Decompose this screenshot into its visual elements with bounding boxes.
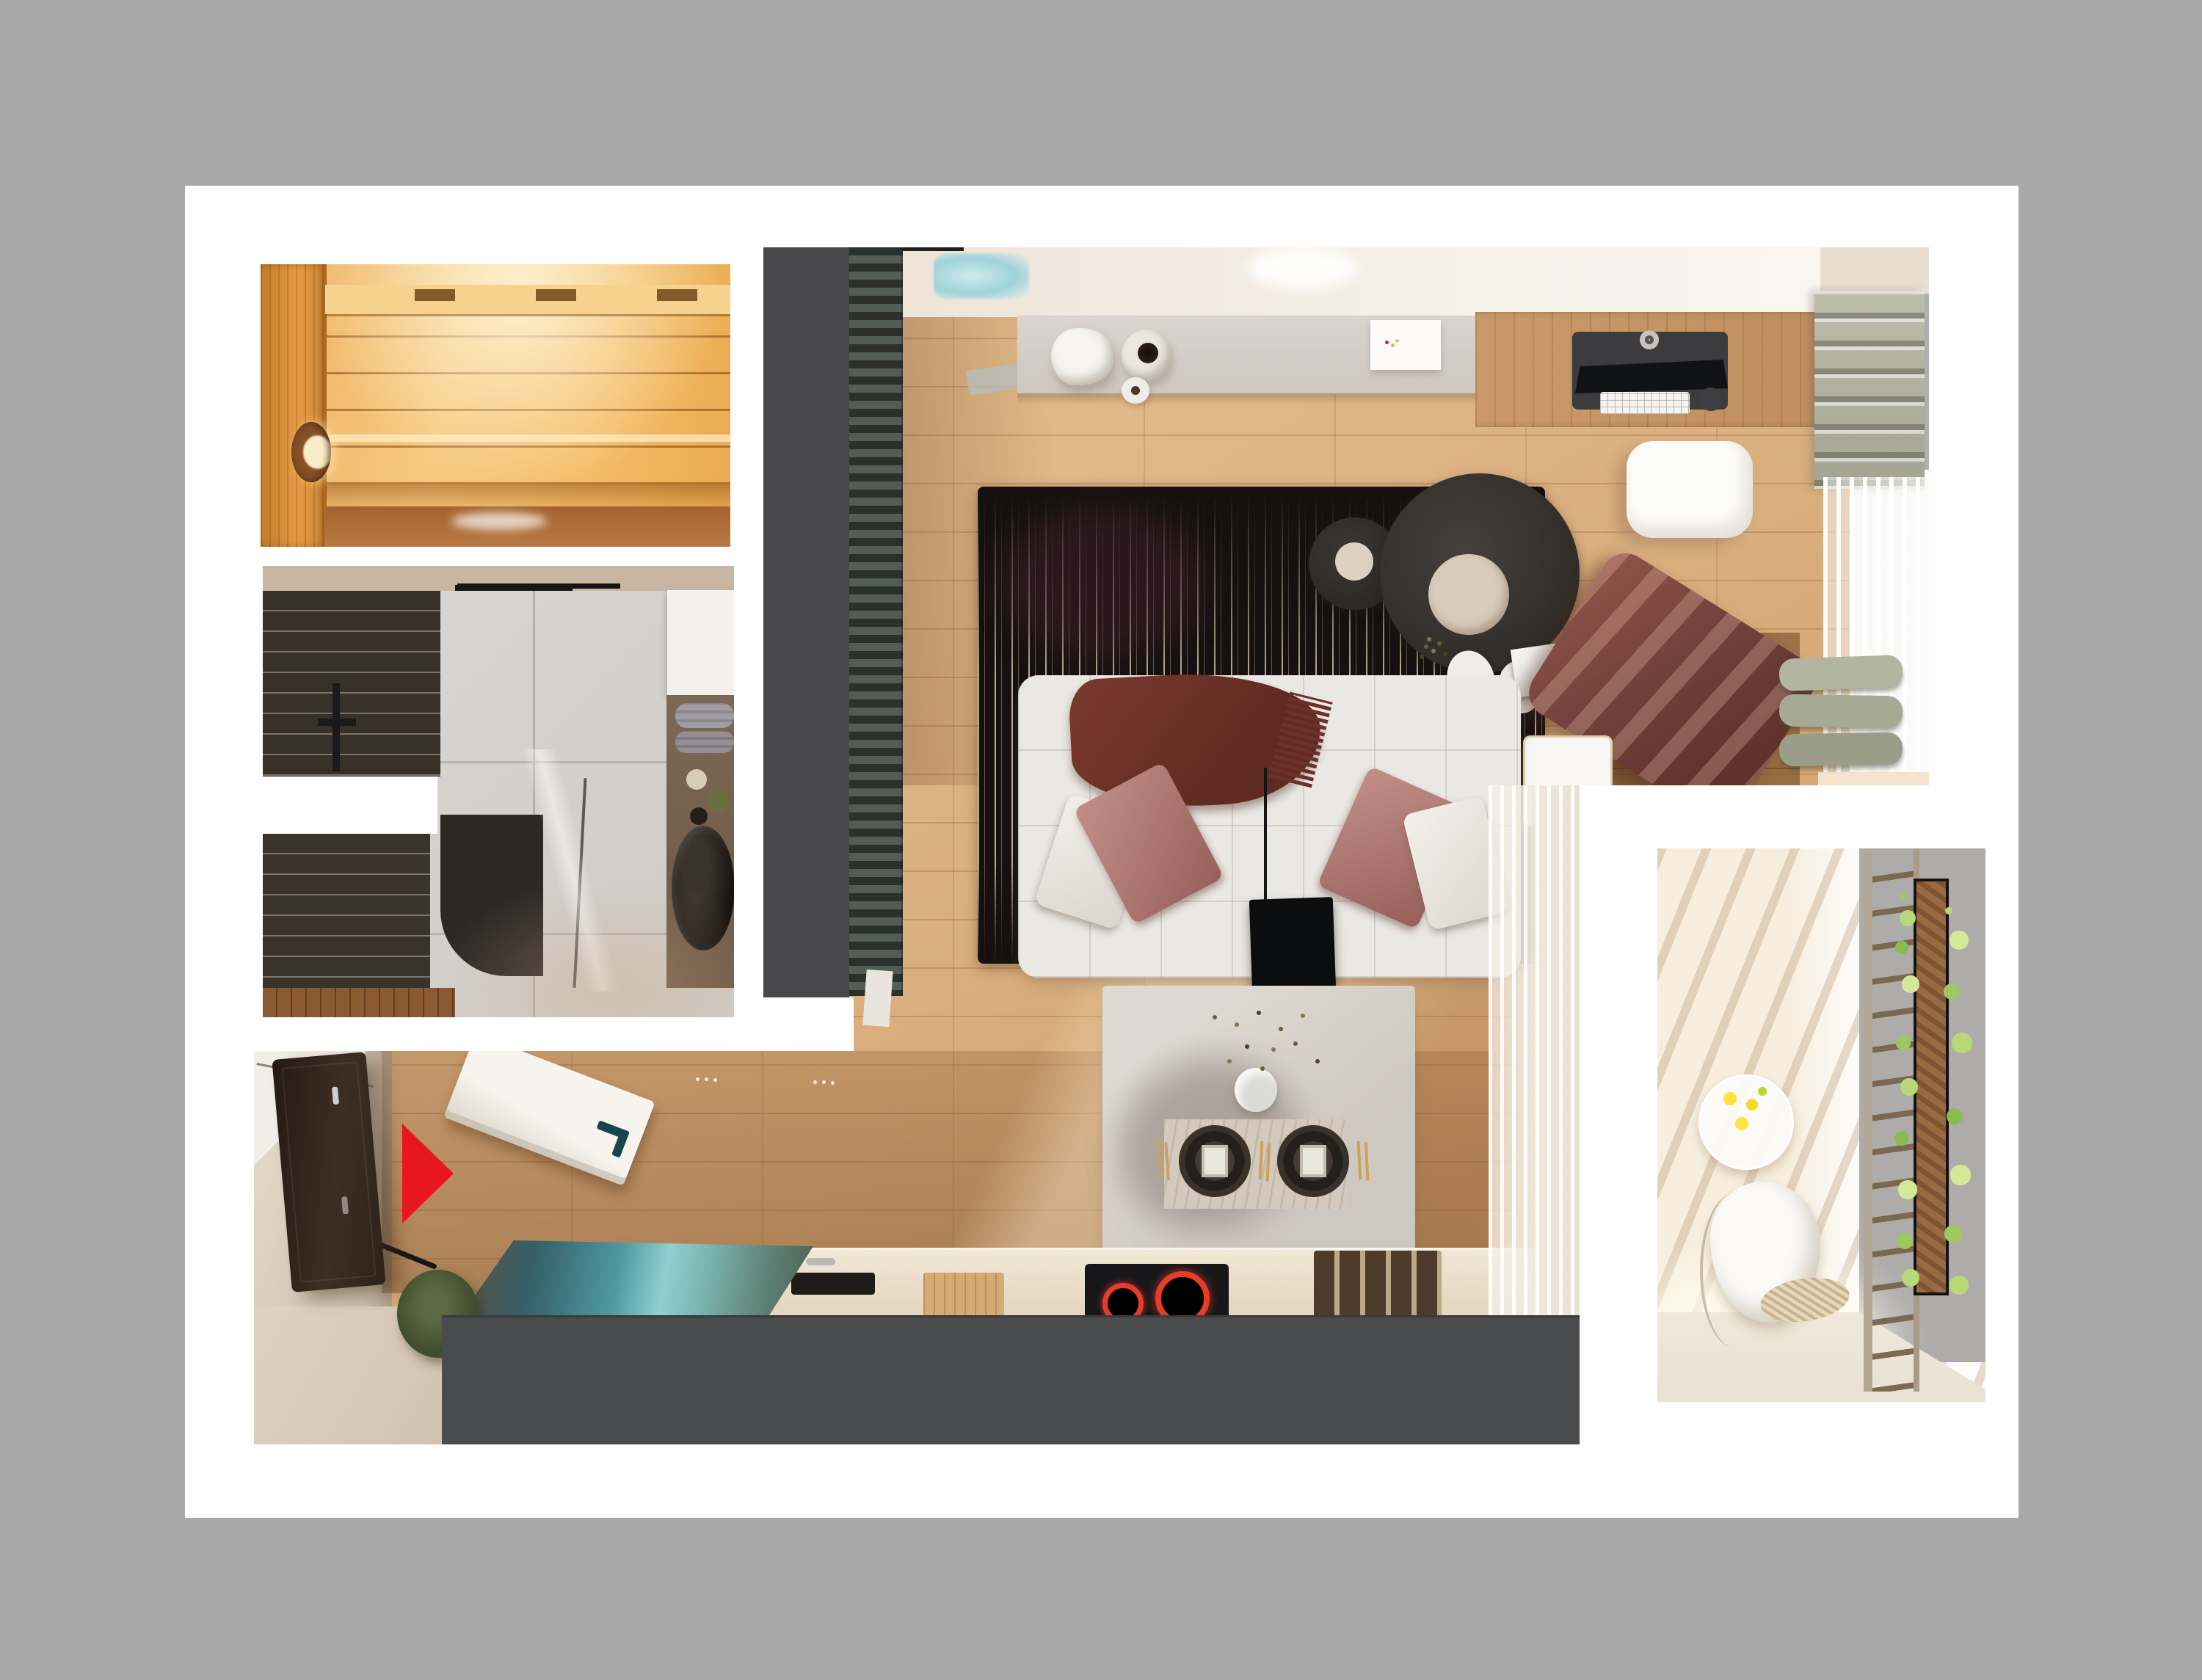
balcony-photo [1657,848,1985,1402]
tv-pole [1264,768,1267,903]
sauna-wall-lamp [291,422,331,482]
sauna-photo [261,264,730,547]
sauna-rail-slots [334,289,730,301]
spotlight-reflections [696,1077,700,1081]
shelving-base-cap [862,970,893,1027]
white-pouf [1627,441,1753,538]
ceiling-band [901,247,1929,317]
soap-dish [690,807,708,825]
bathroom-warm-light [430,874,734,1017]
planter-greenery [1900,892,1907,900]
soap-dish [686,769,707,790]
shower-dark-tiles-upper [263,591,440,777]
skylight [934,253,1029,299]
balcony-trellis-ladder [1864,848,1919,1392]
tv-screen [1249,897,1336,995]
rolled-towel [675,703,734,728]
shower-ceiling-arm [455,585,573,591]
rug-sheen [1000,509,1205,655]
art-print-dots [1385,341,1389,344]
partition-wall-dark [763,247,849,997]
planter-greenery [1945,907,1952,914]
dining-table [1102,986,1415,1251]
balcony-round-table [1698,1074,1794,1170]
gold-cutlery [1357,1141,1362,1179]
glass-vase [1235,1068,1277,1112]
shower-dark-tiles-lower [263,834,430,988]
roman-shade [1814,291,1925,489]
bathroom-wall-notch [263,777,437,834]
kitchen-sink [791,1273,875,1295]
bathroom-cabinet [667,590,734,695]
shower-mixer [333,683,340,771]
lemons-on-table [1723,1092,1737,1105]
dried-flower-sprigs [1213,1015,1217,1019]
window-top-wall [1820,247,1929,294]
window-bench-cushions [1779,657,1905,777]
slatted-shelving-unit [849,247,903,996]
sauna-side-wall [261,264,327,547]
art-print-box [1370,320,1441,370]
folded-cushion [1779,732,1903,767]
tv-console-shadow [1017,393,1475,405]
mouse [1701,388,1720,411]
round-vase-opening [1138,343,1158,363]
shower-handle [318,719,356,726]
soap-dish [706,789,730,812]
cutlery-organizer [1314,1251,1442,1320]
folded-cushion [1779,694,1903,729]
wardrobe-panel-frame [281,1061,376,1283]
coffee-table-small-tray [1335,542,1373,581]
bathroom-wood-floor [263,988,455,1017]
doormat [966,363,1022,396]
keyboard [1600,392,1690,414]
coral-sculpture [1051,328,1113,385]
vertical-planter [1914,879,1949,1295]
dried-flowers [1424,644,1428,649]
floor-plan-canvas [0,0,2202,1680]
rolled-towel [675,731,734,753]
coffee-table-large-tray [1428,554,1509,635]
small-vase-opening [1131,386,1140,395]
napkin-card [1202,1145,1228,1177]
kitchen-faucet [806,1258,835,1265]
cutting-board [923,1273,1004,1321]
kitchen-island-dark [442,1315,1580,1444]
desk-lamp-top [1640,330,1659,349]
napkin-card [1300,1145,1326,1177]
sauna-bench-edge [325,434,730,442]
sauna-floor-highlight [451,512,547,530]
ceiling-glow [1248,247,1358,288]
folded-cushion [1778,655,1903,691]
